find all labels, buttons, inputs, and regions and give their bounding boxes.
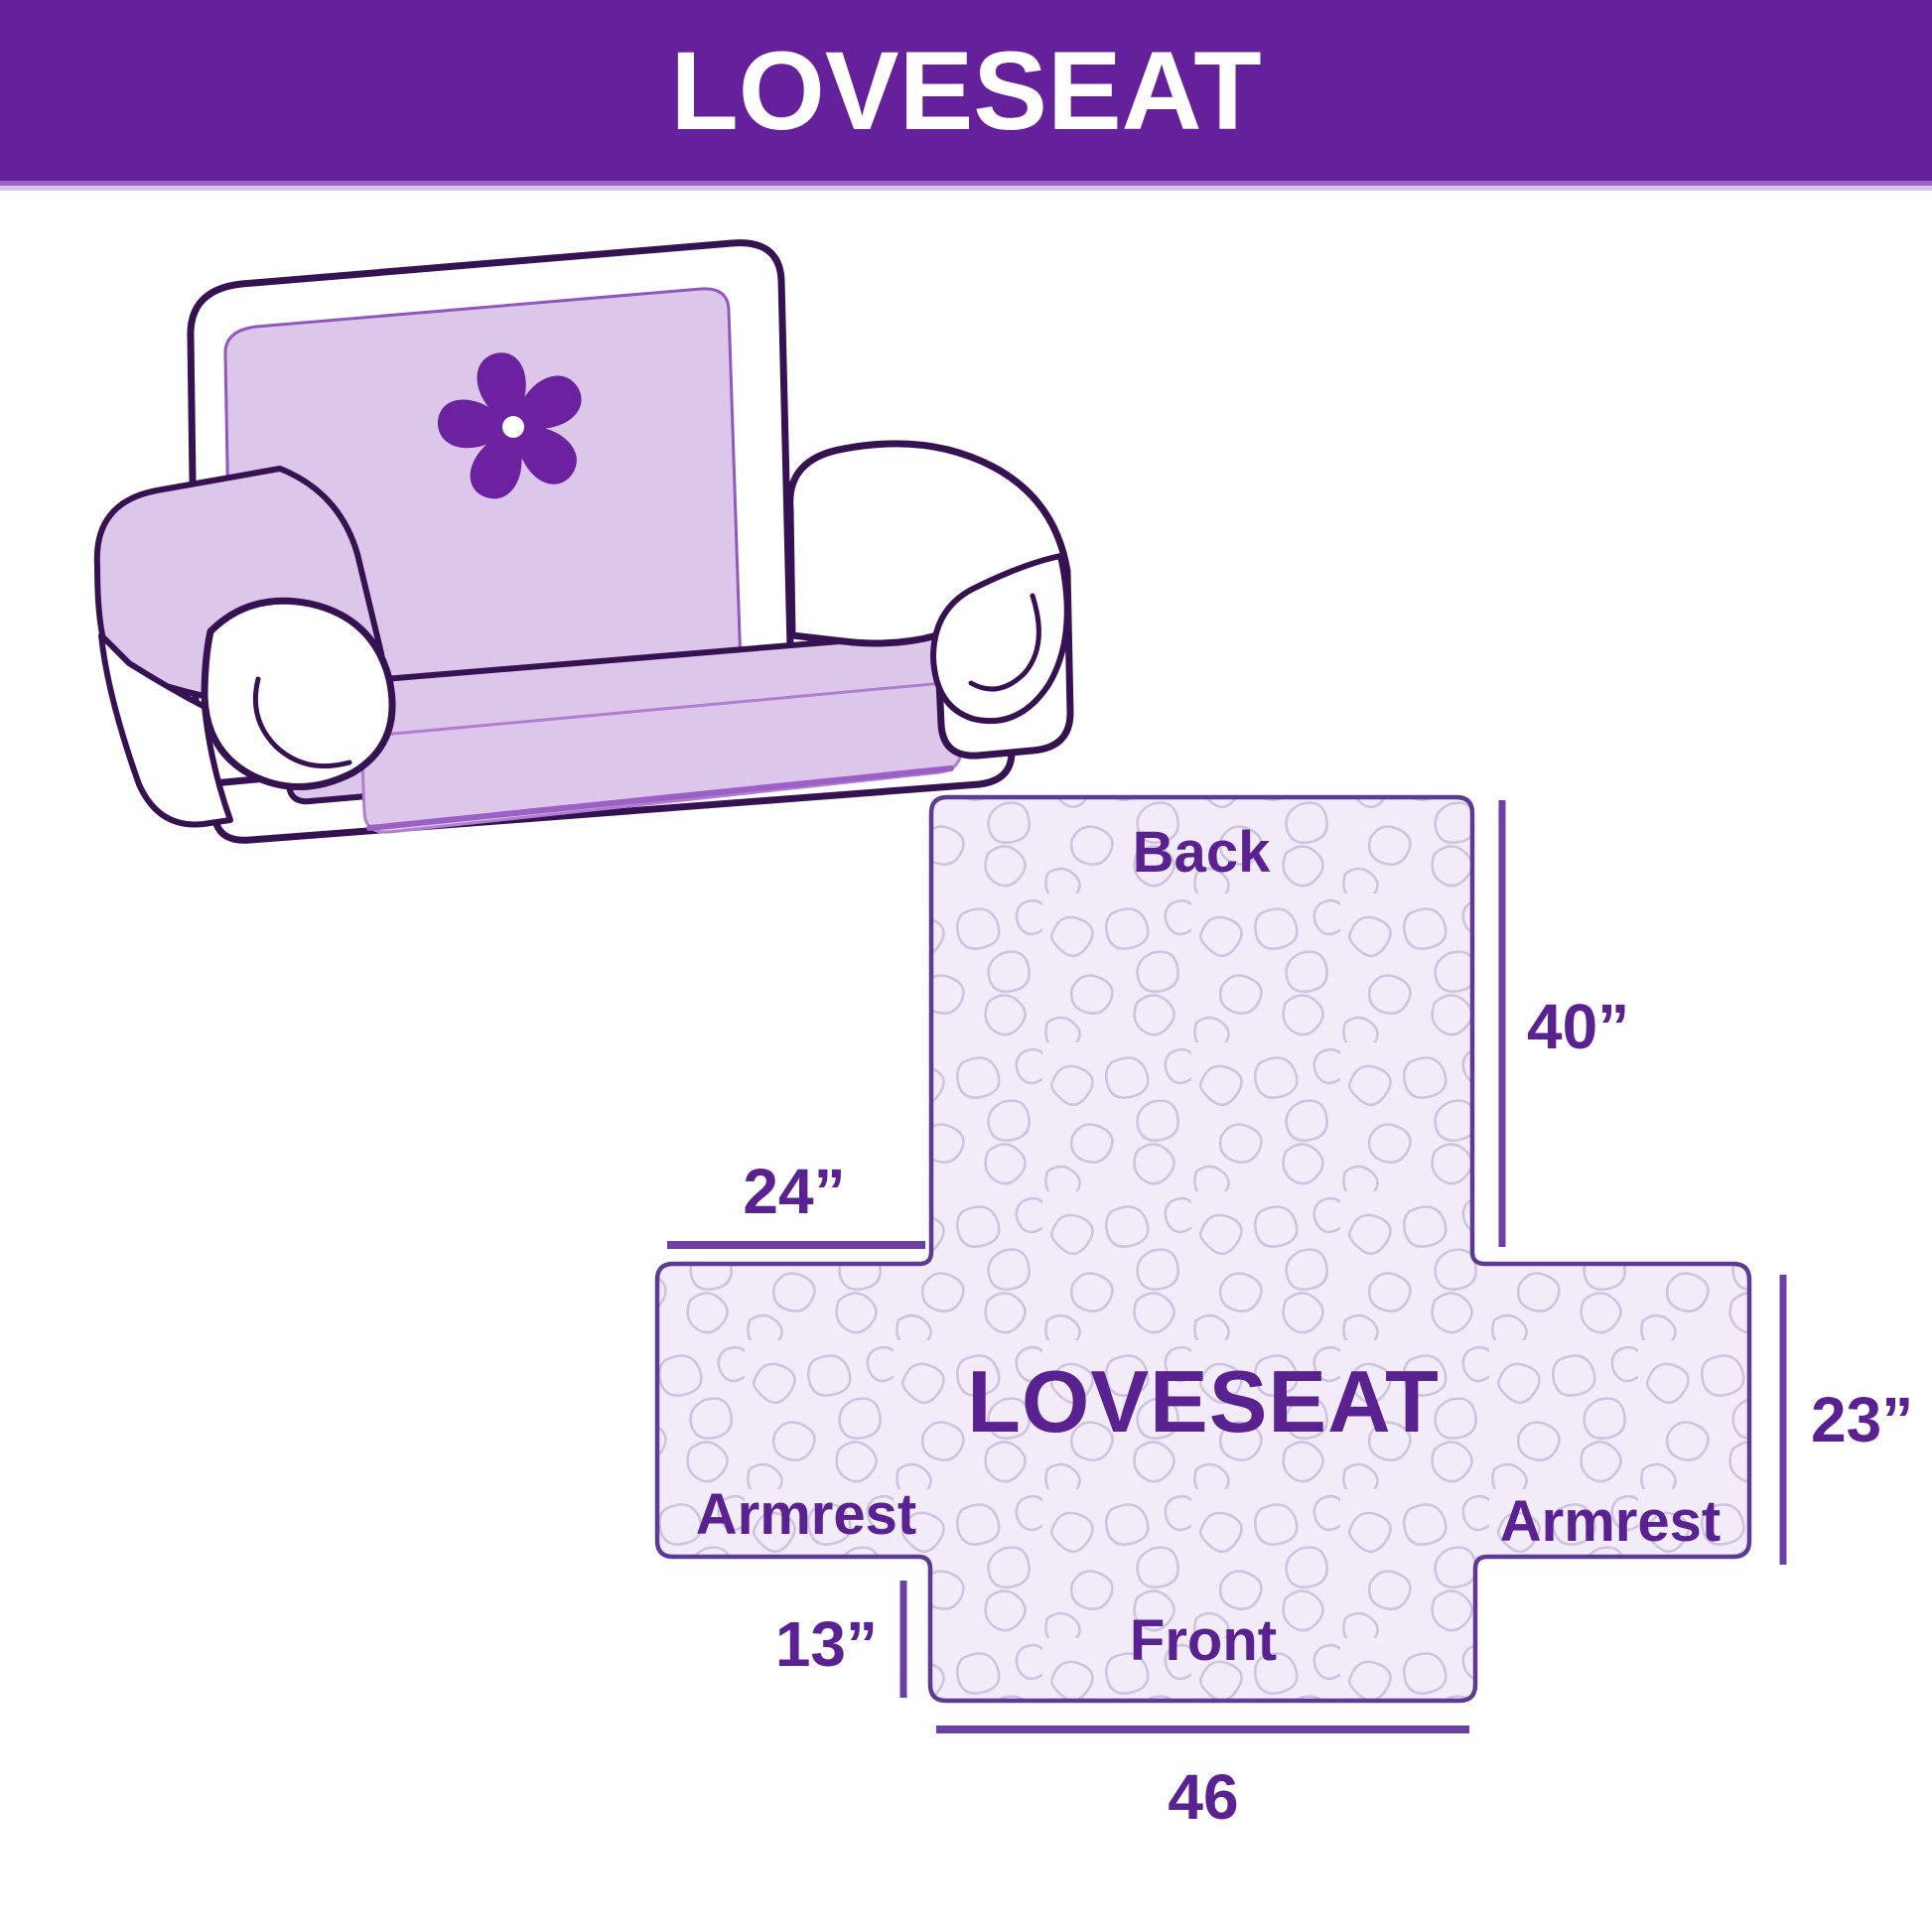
dim-front-width: 46 [1168, 1761, 1238, 1833]
dim-armrest-depth: 23” [1811, 1384, 1913, 1455]
dim-armrest-width: 24” [743, 1156, 845, 1227]
label-armrest-left: Armrest [696, 1482, 916, 1547]
dim-front-drop: 13” [775, 1608, 878, 1680]
label-front: Front [1130, 1608, 1277, 1673]
label-product: LOVESEAT [967, 1352, 1440, 1450]
label-armrest-right: Armrest [1500, 1489, 1721, 1554]
dim-back-height: 40” [1527, 991, 1629, 1062]
cover-diagram: Back Armrest Armrest Front LOVESEAT 40” … [0, 0, 1932, 1932]
label-back: Back [1133, 820, 1271, 885]
loveseat-cover-infographic: LOVESEAT [0, 0, 1932, 1932]
